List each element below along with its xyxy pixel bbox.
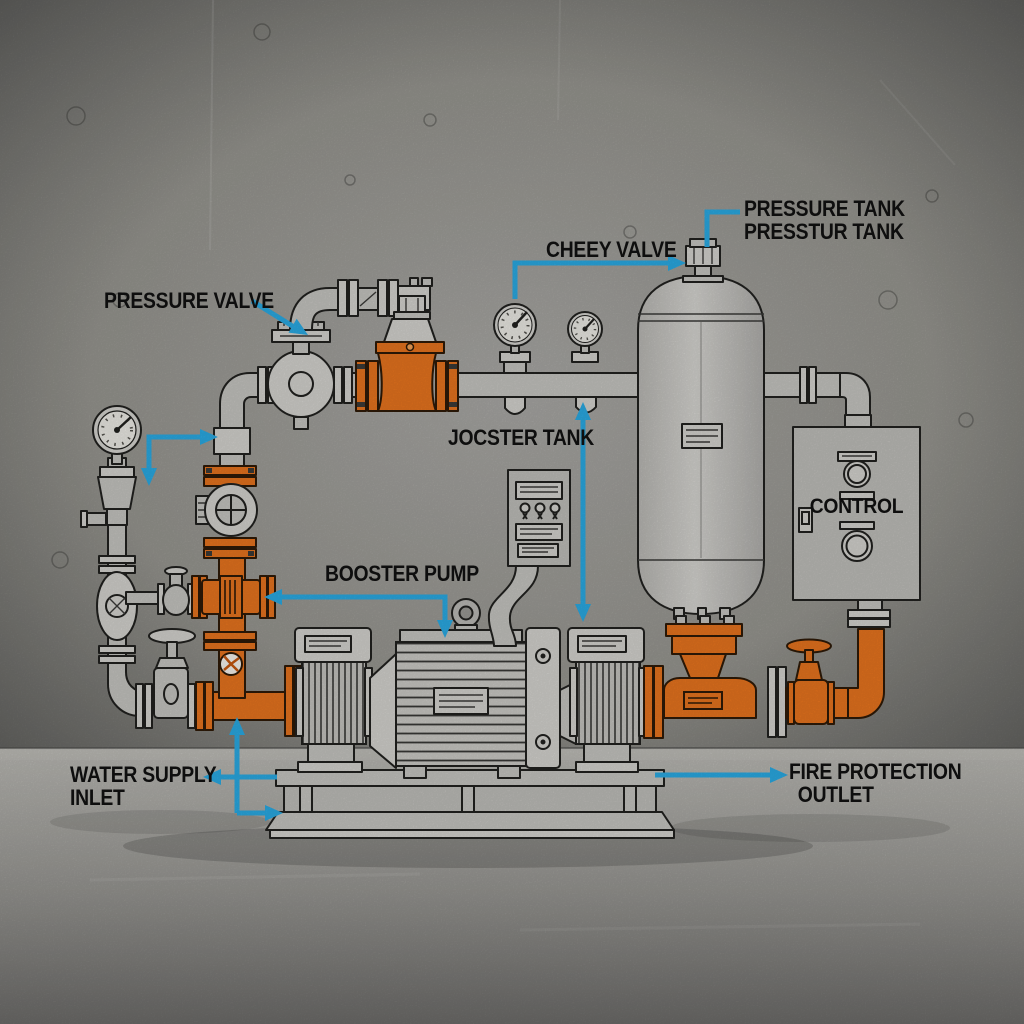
label-fire-protection-line1: FIRE PROTECTION [789, 759, 961, 784]
label-jocster-tank: JOCSTER TANK [448, 426, 594, 449]
label-control: CONTROL [798, 496, 915, 518]
label-pressure-tank-line2: PRESSTUR TANK [744, 220, 905, 243]
label-water-supply-line1: WATER SUPPLY [70, 762, 216, 787]
label-booster-pump: BOOSTER PUMP [325, 562, 479, 585]
label-pressure-tank: PRESSURE TANK PRESSTUR TANK [744, 197, 905, 243]
label-water-supply-line2: INLET [70, 786, 216, 809]
label-cheey-valve: CHEEY VALVE [546, 238, 677, 261]
label-fire-protection-outlet: FIRE PROTECTION OUTLET [789, 760, 961, 806]
label-water-supply-inlet: WATER SUPPLY INLET [70, 763, 216, 809]
label-fire-protection-line2: OUTLET [789, 783, 961, 806]
diagram-stage: PRESSURE VALVE CHEEY VALVE PRESSURE TANK… [0, 0, 1024, 1024]
label-pressure-tank-line1: PRESSURE TANK [744, 196, 905, 221]
label-pressure-valve: PRESSURE VALVE [104, 289, 274, 312]
